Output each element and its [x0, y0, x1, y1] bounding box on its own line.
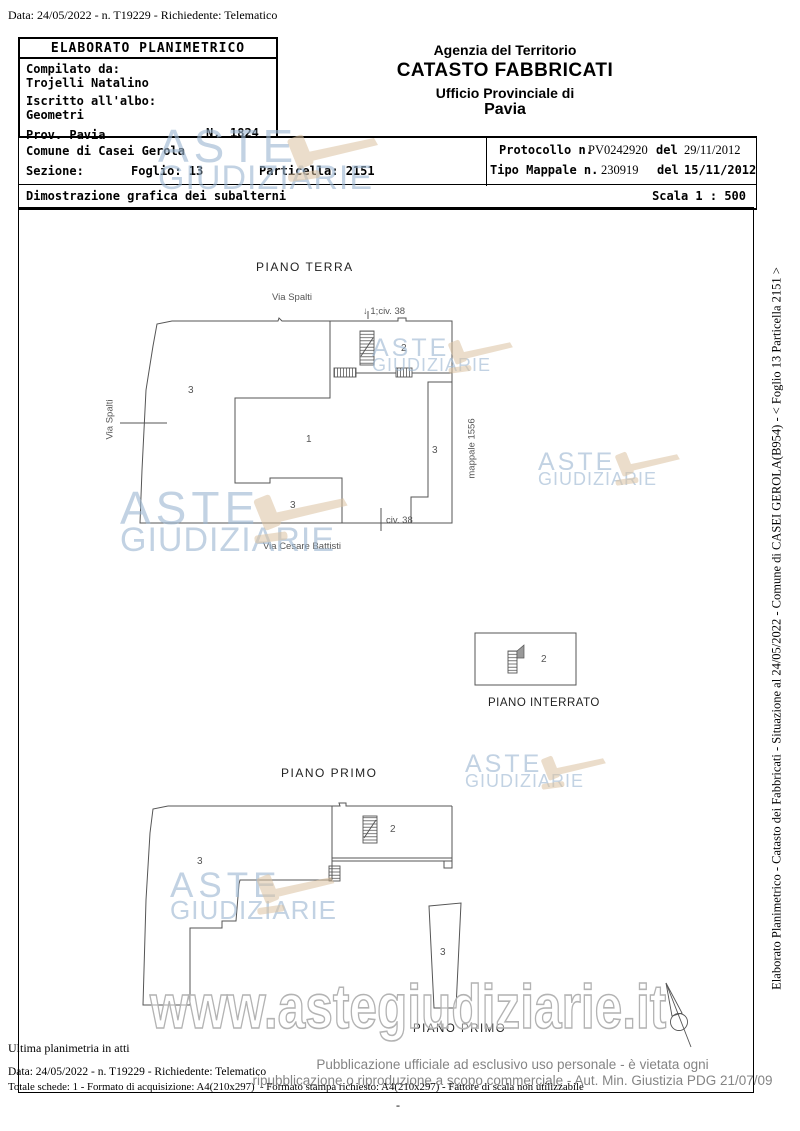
room-label-interrato-2: 2: [541, 654, 547, 665]
tipo-del: del: [657, 163, 679, 177]
prov-label: Prov. Pavia: [20, 128, 105, 142]
agency-line3: Ufficio Provinciale di: [380, 85, 630, 101]
agency-line4: Pavia: [380, 101, 630, 119]
floor-plan-drawing: [18, 208, 752, 1092]
street-label-via-spalti-top: Via Spalti: [272, 292, 312, 303]
north-arrow-icon: [666, 983, 691, 1047]
sezione-label: Sezione:: [26, 164, 84, 178]
room-label-terra-3-right: 3: [432, 445, 438, 456]
dimostrazione-label: Dimostrazione grafica dei subalterni: [26, 189, 286, 203]
tipo-mappale-label: Tipo Mappale n.: [490, 163, 598, 177]
room-label-primo-2: 2: [390, 824, 396, 835]
piano-primo-outline: [143, 803, 461, 1008]
legal-notice: Pubblicazione ufficiale ad esclusivo uso…: [225, 1057, 800, 1088]
protocollo-date: 29/11/2012: [684, 143, 740, 158]
mappale-1556-label: mappale 1556: [467, 409, 478, 489]
protocollo-cell: Protocollo n. PV0242920 del 29/11/2012 T…: [486, 138, 757, 186]
piano-interrato-outline: [475, 633, 576, 685]
particella-label: Particella: 2151: [259, 164, 375, 178]
room-label-terra-2: 2: [401, 343, 407, 354]
document-date-line: Data: 24/05/2022 - n. T19229 - Richieden…: [8, 8, 277, 23]
agency-header: Agenzia del Territorio CATASTO FABBRICAT…: [380, 42, 630, 119]
tipo-date: 15/11/2012: [684, 163, 756, 177]
scala-label: Scala 1 : 500: [652, 189, 746, 203]
prov-n-value: 1824: [230, 126, 259, 140]
legal-line2: ripubblicazione o riproduzione a scopo c…: [225, 1073, 800, 1089]
tipo-mappale-number: 230919: [601, 163, 639, 178]
agency-line2: CATASTO FABBRICATI: [380, 60, 630, 82]
stairs-symbol-terra: [360, 331, 374, 365]
street-label-via-spalti-left: Via Spalti: [105, 380, 116, 460]
civ-38-top-label: ↓ 1;civ. 38: [363, 306, 405, 317]
footer-dash: -: [396, 1098, 400, 1113]
foglio-label: Foglio: 13: [131, 164, 203, 178]
cadastral-document-page: Data: 24/05/2022 - n. T19229 - Richieden…: [0, 0, 800, 1131]
room-label-primo-3-right: 3: [440, 947, 446, 958]
elaborato-title: ELABORATO PLANIMETRICO: [20, 39, 276, 59]
agency-line1: Agenzia del Territorio: [380, 42, 630, 58]
room-label-terra-3-left: 3: [188, 385, 194, 396]
down-arrow-icon: ↓: [363, 306, 368, 317]
iscritto-value: Geometri: [20, 108, 276, 122]
street-label-via-cesare-battisti: Via Cesare Battisti: [263, 541, 341, 552]
legal-line1: Pubblicazione ufficiale ad esclusivo uso…: [225, 1057, 800, 1073]
stairs-symbol-interrato: [508, 651, 517, 673]
side-vertical-caption: Elaborato Planimetrico - Catasto dei Fab…: [770, 199, 785, 1059]
piano-primo-bottom-title: PIANO PRIMO: [413, 1023, 506, 1035]
iscritto-label: Iscritto all'albo:: [20, 94, 276, 108]
protocollo-number: PV0242920: [588, 143, 648, 158]
piano-terra-title: PIANO TERRA: [256, 260, 354, 274]
room-label-terra-3-bottom: 3: [290, 500, 296, 511]
protocollo-del: del: [656, 143, 678, 157]
room-label-terra-1: 1: [306, 434, 312, 445]
civ-38-bottom-label: civ. 38: [386, 515, 413, 526]
comune-label: Comune di Casei Gerola: [26, 144, 185, 158]
ultima-planimetria-line: Ultima planimetria in atti: [8, 1041, 130, 1056]
compilato-value: Trojelli Natalino: [20, 76, 276, 90]
prov-n-label: N.: [206, 126, 220, 140]
compilato-label: Compilato da:: [20, 62, 276, 76]
room-label-primo-3-left: 3: [197, 856, 203, 867]
piano-primo-title: PIANO PRIMO: [281, 766, 378, 780]
protocollo-label: Protocollo n.: [499, 143, 593, 157]
piano-interrato-title: PIANO INTERRATO: [488, 697, 600, 709]
dimostrazione-row: Dimostrazione grafica dei subalterni Sca…: [18, 184, 757, 210]
elaborato-planimetrico-box: ELABORATO PLANIMETRICO Compilato da: Tro…: [18, 37, 278, 138]
